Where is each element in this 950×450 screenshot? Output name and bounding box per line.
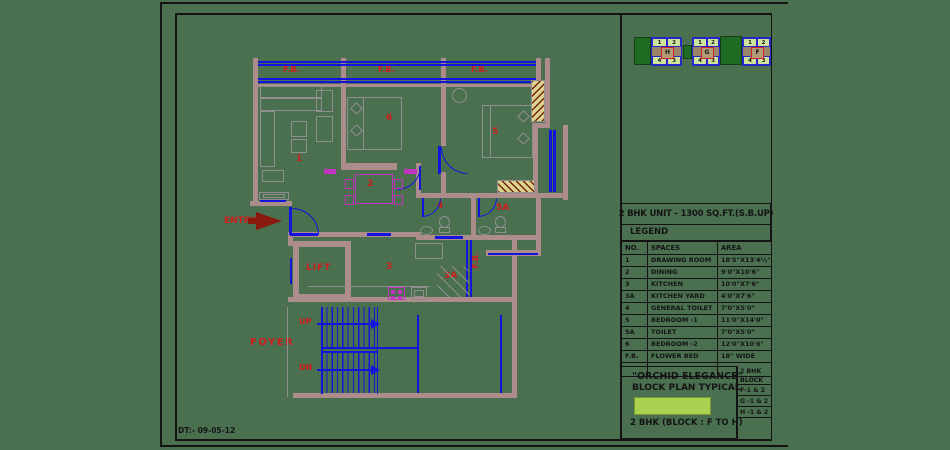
flower-bed-label-3: F.B. <box>471 66 487 74</box>
title-block: "ORCHID ELEGANCE" BLOCK PLAN TYPICAL 2 B… <box>621 366 737 439</box>
stove-burner <box>398 296 402 300</box>
room-label-kitchen: 3 <box>386 263 392 272</box>
dining-chair <box>345 195 354 205</box>
wardrobe-bedroom1 <box>531 80 545 122</box>
legend-table: NO.SPACESAREA 1DRAWING ROOM18'5"X13'4½"2… <box>621 241 772 377</box>
column-divider-line <box>620 13 622 440</box>
wardrobe-bedroom1-low <box>497 180 535 193</box>
legend-cell: 18'5"X13'4½" <box>718 255 772 267</box>
basin-toilet5a <box>478 226 491 235</box>
legend-column-header: AREA <box>718 242 772 255</box>
project-name: "ORCHID ELEGANCE" <box>632 371 743 382</box>
wall-far-right <box>563 125 568 200</box>
block-list-item: 2 BHK <box>738 366 771 376</box>
outer-frame-left <box>160 2 162 447</box>
block-list-item: H -1 & 2 <box>738 407 771 418</box>
wc-tank-toilet5a <box>495 227 506 233</box>
legend-cell: 4 <box>622 303 648 315</box>
legend-row: 4GENERAL TOILET7'0"X5'0" <box>622 303 772 315</box>
block-list-item: F-1 & 2 <box>738 385 771 396</box>
flower-bed-label-2: F.B. <box>378 66 394 74</box>
date-note: DT:- 09-05-12 <box>178 426 235 435</box>
legend-cell: F.B. <box>622 351 648 363</box>
inner-frame-top <box>175 13 772 15</box>
highlight-bar <box>634 397 711 415</box>
drawing-sheet: F.B. F.B. F.B. 1 2 6 5 4 5A 3 3A LIFT EN… <box>0 0 950 450</box>
flower-bed-side-label: F.B. <box>472 252 480 268</box>
entry-door-arc <box>292 208 319 235</box>
key-plan-block-G: 1243G <box>692 37 720 66</box>
legend-cell: 2 <box>622 267 648 279</box>
legend-row: 3AKITCHEN YARD4'0"X7'6" <box>622 291 772 303</box>
side-table <box>262 170 284 182</box>
legend-table-header: NO.SPACESAREA <box>622 242 772 255</box>
legend-cell: 1 <box>622 255 648 267</box>
inner-frame-left <box>175 13 177 440</box>
legend-cell: 7'0"X5'0" <box>718 303 772 315</box>
legend-row: 2DINING9'0"X10'6" <box>622 267 772 279</box>
wall-stairs-bottom <box>293 393 517 398</box>
outer-frame-top <box>160 2 788 4</box>
stairs-dn-label: DN <box>299 364 312 372</box>
legend-column-header: SPACES <box>648 242 718 255</box>
block-list-column: 2 BHKBLOCKF-1 & 2G -1 & 2H -1 & 2 <box>737 366 771 439</box>
legend-cell: 10'0"X7'6" <box>718 279 772 291</box>
window-right <box>549 130 552 192</box>
legend-heading: LEGEND <box>621 225 771 241</box>
lift-shaft <box>293 241 351 300</box>
cabinet <box>316 116 333 142</box>
legend-column-header: NO. <box>622 242 648 255</box>
unit-block-line: 2 BHK (BLOCK : F TO H) <box>630 418 743 428</box>
key-plan-block-letter: H <box>661 47 674 59</box>
outer-frame-bottom <box>160 445 788 447</box>
legend-cell: 7'0"X5'0" <box>718 327 772 339</box>
dn-arrow-head <box>371 365 380 375</box>
stair-treads-lower <box>321 353 378 393</box>
window-flower-bed-line <box>258 81 536 83</box>
legend-cell: 11'0"X14'0" <box>718 315 772 327</box>
wall-marker <box>404 169 417 174</box>
wall-toilets-right <box>536 198 541 240</box>
stair-treads-upper <box>321 307 378 347</box>
legend-cell: 3A <box>622 291 648 303</box>
unit-title-bar: 2 BHK UNIT - 1300 SQ.FT.(S.B.UP) <box>621 203 771 225</box>
key-plan-block-letter: F <box>751 47 764 59</box>
legend-table-body: 1DRAWING ROOM18'5"X13'4½"2DINING9'0"X10'… <box>622 255 772 377</box>
wall-bedroom2-bottom <box>341 163 397 170</box>
legend-cell: KITCHEN <box>648 279 718 291</box>
wall-marker <box>324 169 336 174</box>
wall-right-upper <box>545 58 550 128</box>
bed-bedroom1-line <box>490 105 491 158</box>
legend-cell: FLOWER BED <box>648 351 718 363</box>
window-right <box>553 130 556 192</box>
wall-lower-right <box>512 240 517 398</box>
basin-toilet4 <box>420 226 433 235</box>
window-kitchen <box>367 233 391 236</box>
fb-box-rail <box>488 253 538 255</box>
wall-room1-room6-divider <box>341 58 346 170</box>
legend-row: 1DRAWING ROOM18'5"X13'4½" <box>622 255 772 267</box>
key-plan-block-H: 1243H <box>651 37 682 66</box>
legend-cell: KITCHEN YARD <box>648 291 718 303</box>
legend-row: 3KITCHEN10'0"X7'6" <box>622 279 772 291</box>
block-list-item: G -1 & 2 <box>738 396 771 407</box>
stair-rail-horizontal <box>378 347 419 349</box>
legend-row: F.B.FLOWER BED18" WIDE <box>622 351 772 363</box>
console-table-inner <box>263 194 285 198</box>
window-flower-bed-line <box>258 64 536 66</box>
legend-cell: BEDROOM -2 <box>648 339 718 351</box>
key-plan-block-letter: G <box>701 47 714 59</box>
stair-rail <box>417 315 419 393</box>
toilet5a-door-arc <box>478 198 497 217</box>
wall-bedroom1-left-upper <box>441 58 446 146</box>
key-plan-block-F: 1243F <box>742 37 771 66</box>
legend-cell: BEDROOM -1 <box>648 315 718 327</box>
legend-cell: 5 <box>622 315 648 327</box>
bedroom1-door-arc <box>441 147 468 174</box>
key-plan-garden <box>720 36 742 65</box>
lift-door-mark <box>290 258 292 284</box>
stove-burner <box>398 290 402 294</box>
room-label-drawing-room: 1 <box>296 155 302 164</box>
kitchen-yard-hatch <box>437 266 469 297</box>
wall-toilets-divider <box>471 198 476 235</box>
tv-unit <box>316 90 333 112</box>
legend-cell: 5A <box>622 327 648 339</box>
legend-cell: 4'0"X7'6" <box>718 291 772 303</box>
legend-cell: TOILET <box>648 327 718 339</box>
legend-cell: 12'0"X10'6" <box>718 339 772 351</box>
inner-frame-right <box>771 13 773 440</box>
stair-rail <box>500 315 502 393</box>
round-chair <box>452 88 467 103</box>
key-plan-garden <box>634 37 651 65</box>
dining-table <box>355 174 393 204</box>
window-flower-bed-line <box>258 78 536 80</box>
up-arrow-head <box>371 319 380 329</box>
kitchen-sink-inner <box>414 290 424 297</box>
dining-chair <box>394 195 403 205</box>
fridge <box>415 243 443 259</box>
drawing-title: BLOCK PLAN TYPICAL <box>632 383 741 393</box>
legend-cell: 6 <box>622 339 648 351</box>
bed-bedroom2-line <box>363 97 364 150</box>
stove-burner <box>391 290 395 294</box>
legend-row: 6BEDROOM -212'0"X10'6" <box>622 339 772 351</box>
center-table <box>291 139 307 153</box>
sofa-left <box>260 111 275 167</box>
legend-cell: 3 <box>622 279 648 291</box>
key-plan-garden <box>683 45 692 59</box>
room-label-toilet: 5A <box>496 204 509 213</box>
wc-tank-toilet4 <box>439 227 450 233</box>
window-flower-bed-line <box>258 61 536 63</box>
entry-arrow <box>256 212 282 230</box>
legend-cell: 18" WIDE <box>718 351 772 363</box>
flower-bed-label-1: F.B. <box>283 66 299 74</box>
dining-chair <box>345 179 354 189</box>
stair-landing-line <box>321 347 378 349</box>
entry-arrow-tail <box>248 218 258 224</box>
inner-frame-bottom <box>175 439 772 441</box>
legend-cell: DINING <box>648 267 718 279</box>
sofa-back <box>260 86 322 98</box>
stair-left-edge <box>287 307 288 397</box>
legend-row: 5BEDROOM -111'0"X14'0" <box>622 315 772 327</box>
window-kitchen-yard <box>435 236 463 239</box>
legend-cell: DRAWING ROOM <box>648 255 718 267</box>
stove-burner <box>391 296 395 300</box>
sofa-seat <box>260 98 322 111</box>
stairs-up-label: UP <box>299 318 311 326</box>
legend-cell: 9'0"X10'6" <box>718 267 772 279</box>
legend-cell: GENERAL TOILET <box>648 303 718 315</box>
legend-row: 5ATOILET7'0"X5'0" <box>622 327 772 339</box>
center-table <box>291 121 307 137</box>
dining-chair <box>394 179 403 189</box>
block-list-item: BLOCK <box>738 376 771 385</box>
rail-kitchen-yard <box>470 240 472 297</box>
toilet4-door-arc <box>422 198 441 217</box>
